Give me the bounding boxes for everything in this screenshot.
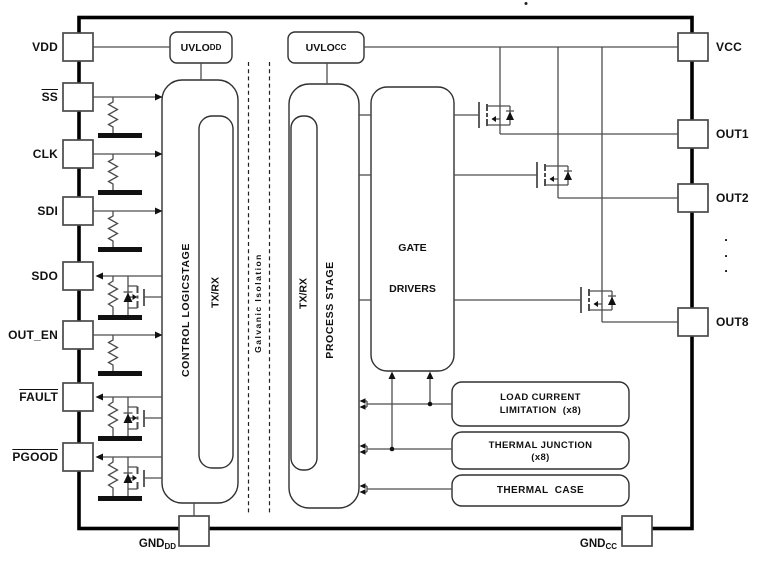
pin-out-en: [63, 321, 93, 349]
pin-vdd: [63, 33, 93, 61]
load-current-line: [361, 401, 452, 407]
ss-label: SS: [2, 83, 58, 111]
gate-drivers-line2: DRIVERS: [371, 283, 454, 297]
pin-sdi: [63, 197, 93, 225]
txrx-right-title: TX/RX: [298, 263, 311, 323]
thermal-junction-line1: THERMAL JUNCTION: [452, 439, 629, 452]
load-current-line2: LIMITATION (x8): [452, 404, 629, 417]
pin-sdo: [63, 262, 93, 290]
resistor-out-en: [109, 335, 118, 371]
pgood-label: PGOOD: [2, 443, 58, 471]
pin-out2: [678, 184, 708, 212]
stray-dot: [525, 2, 528, 5]
thermal-case-title: THERMAL CASE: [452, 484, 629, 497]
arrow-sdo: [96, 273, 104, 280]
process-stage-title: PROCESS STAGE: [324, 100, 338, 520]
gnd-bar-sdi: [98, 247, 142, 252]
block-diagram: VDD SS CLK SDI SDO OUT_EN FAULT PGOOD VC…: [0, 0, 762, 569]
resistor-fault: [109, 397, 118, 436]
load-current-line1: LOAD CURRENT: [452, 391, 629, 404]
resistor-sdi: [109, 211, 118, 247]
vdd-label: VDD: [2, 33, 58, 61]
pin-out8: [678, 308, 708, 336]
arrow-pgood: [96, 454, 104, 461]
gnd-bar-ss: [98, 133, 142, 138]
gnd-bar-out-en: [98, 371, 142, 376]
pin-vcc: [678, 33, 708, 61]
pin-ss: [63, 83, 93, 111]
pin-pgood: [63, 443, 93, 471]
outputs-ellipsis: . . .: [716, 229, 736, 276]
thermal-junction-line: [361, 446, 452, 452]
gnd-bar-sdo: [98, 315, 142, 320]
gnd-bar-fault: [98, 436, 142, 441]
thermal-junction-line2: (x8): [452, 451, 629, 464]
gate-drivers-title: GATE DRIVERS: [371, 215, 454, 323]
fault-label: FAULT: [2, 383, 58, 411]
resistor-sdo: [109, 276, 118, 315]
gnd-dd-label: GNDDD: [96, 537, 176, 551]
pin-fault: [63, 383, 93, 411]
out-en-label: OUT_EN: [2, 321, 58, 349]
control-logic-stage-title: CONTROL LOGICSTAGE: [180, 100, 194, 520]
uvlo-cc-label: UVLOCC: [288, 32, 364, 63]
uvlo-dd-label: UVLODD: [170, 32, 232, 63]
gnd-bar-clk: [98, 190, 142, 195]
resistor-pgood: [109, 457, 118, 496]
out2-label: OUT2: [716, 184, 762, 212]
sdo-label: SDO: [2, 262, 58, 290]
pin-out1: [678, 120, 708, 148]
out1-label: OUT1: [716, 120, 762, 148]
pin-gnd-dd: [179, 516, 209, 546]
pin-clk: [63, 140, 93, 168]
gnd-cc-label: GNDCC: [537, 537, 617, 551]
txrx-left-title: TX/RX: [210, 262, 223, 322]
out8-label: OUT8: [716, 308, 762, 336]
galvanic-isolation-title: Galvanic Isolation: [253, 228, 265, 378]
resistor-clk: [109, 154, 118, 190]
gate-drivers-line1: GATE: [371, 242, 454, 256]
vcc-label: VCC: [716, 33, 762, 61]
resistor-ss: [109, 97, 118, 133]
gnd-bar-pgood: [98, 496, 142, 501]
mosfet-out2: [537, 162, 678, 198]
pin-gnd-cc: [622, 516, 652, 546]
clk-label: CLK: [2, 140, 58, 168]
thermal-case-line: [361, 486, 452, 492]
arrow-fault: [96, 394, 104, 401]
sdi-label: SDI: [2, 197, 58, 225]
